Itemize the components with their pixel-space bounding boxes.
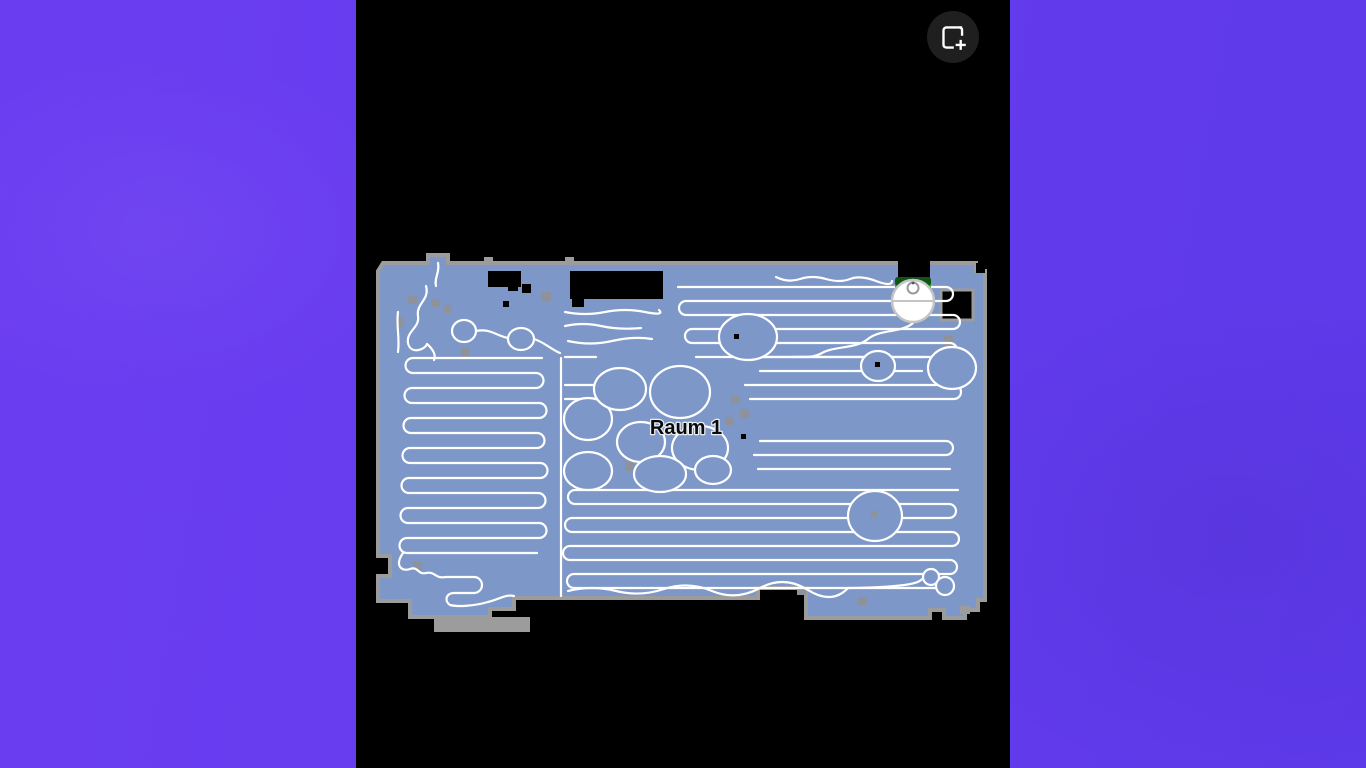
room-label[interactable]: Raum 1	[650, 417, 722, 439]
add-map-button[interactable]	[927, 11, 979, 63]
vacuum-map-canvas[interactable]: Raum 1	[356, 0, 1010, 768]
phone-screen: Raum 1	[356, 0, 1010, 768]
robot-icon[interactable]	[892, 280, 934, 322]
wallpaper-background: Raum 1	[0, 0, 1366, 768]
frame-plus-icon	[940, 24, 967, 51]
